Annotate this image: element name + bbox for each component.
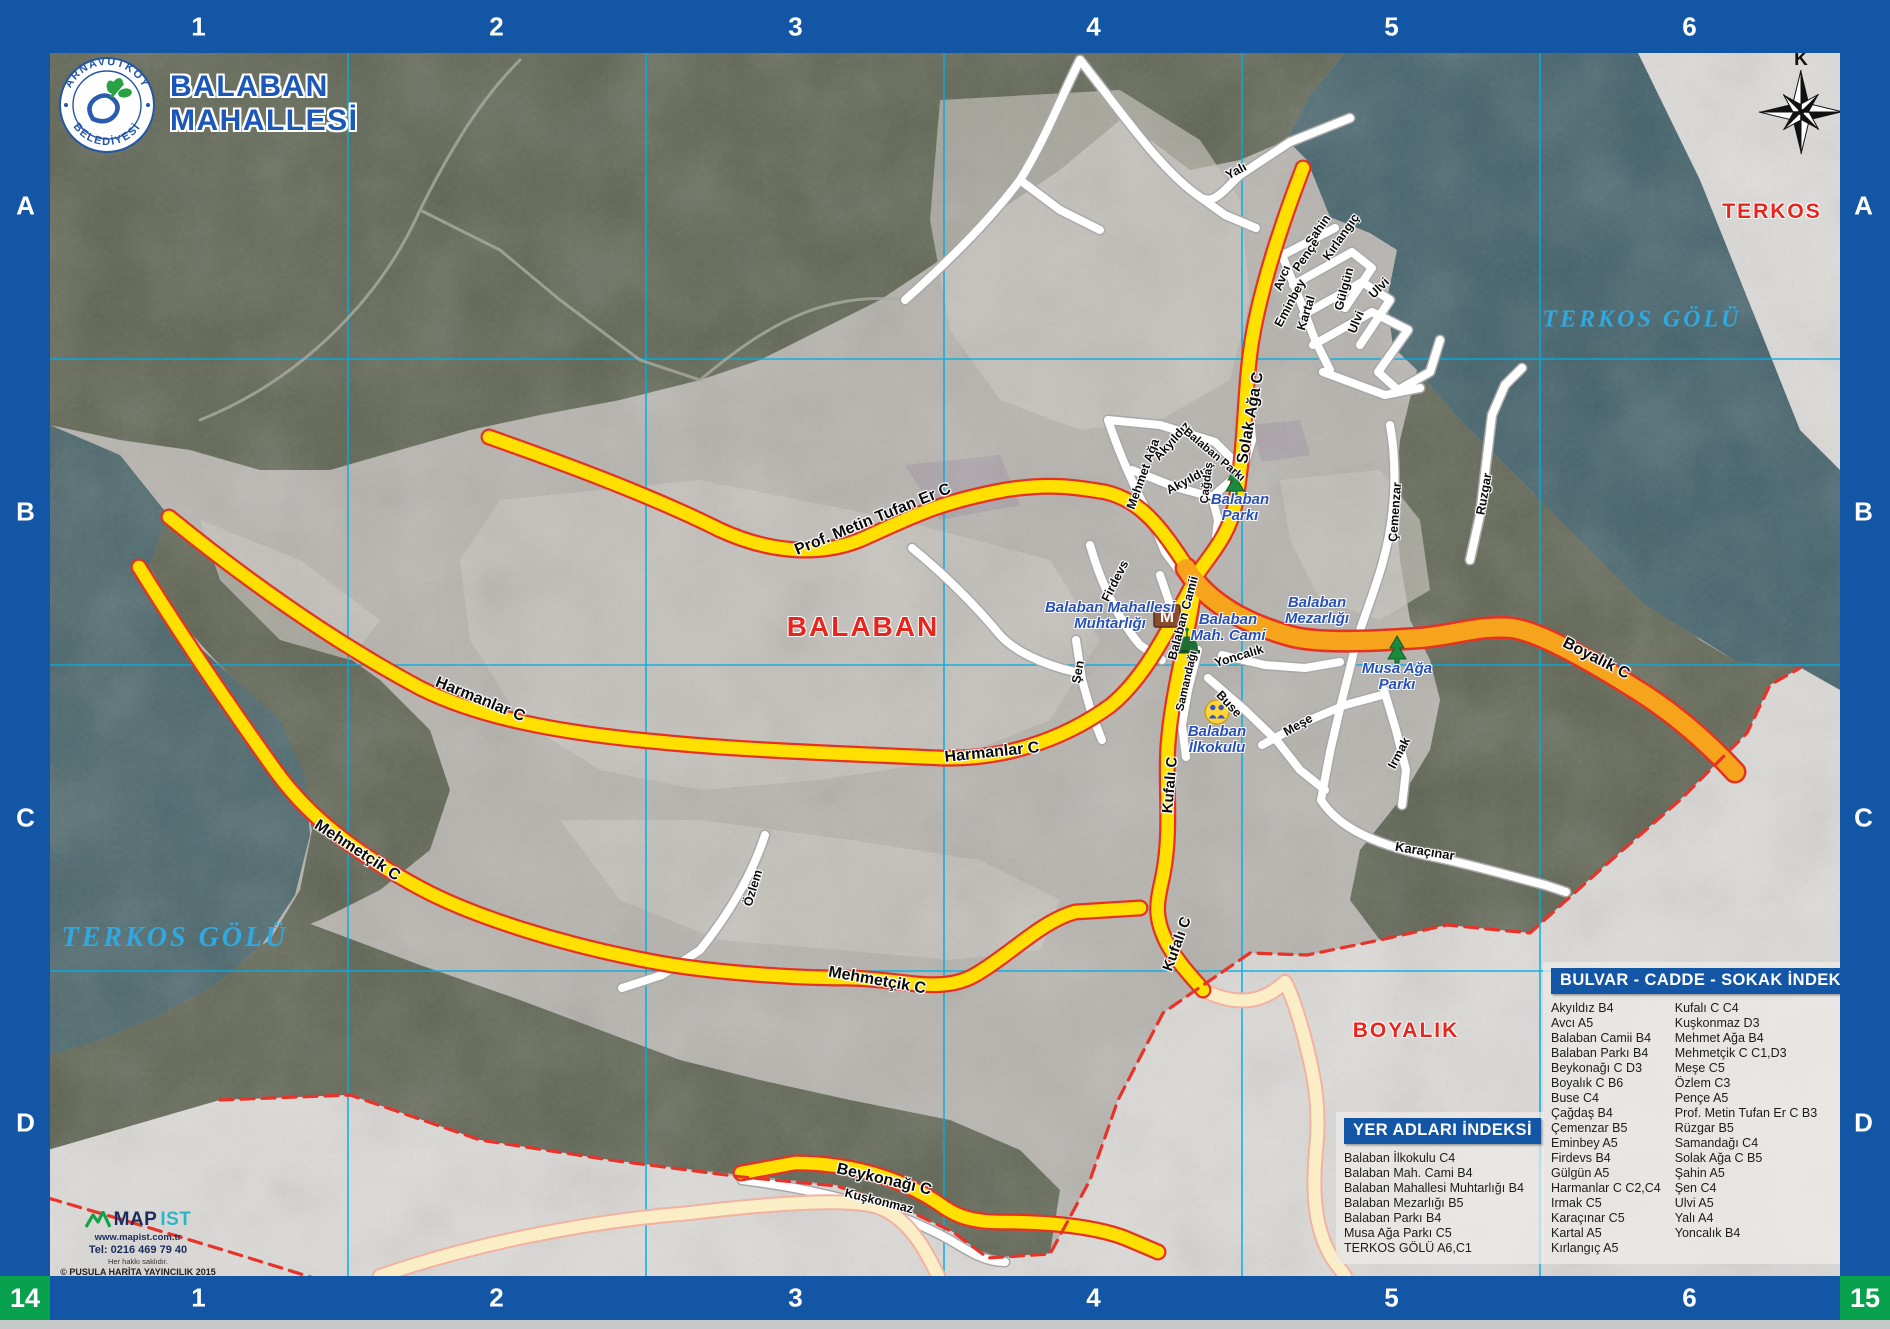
index-entry: Buse C4 xyxy=(1551,1091,1661,1106)
index-entry: Balaban İlkokulu C4 xyxy=(1344,1151,1536,1166)
index-entry: Meşe C5 xyxy=(1675,1061,1817,1076)
grid-column-label: 5 xyxy=(1384,12,1399,43)
index-entry: Yalı A4 xyxy=(1675,1211,1817,1226)
grid-column-label: 1 xyxy=(191,12,206,43)
grid-column-label: 2 xyxy=(489,12,504,43)
place-index-box: YER ADLARI İNDEKSİ Balaban İlkokulu C4Ba… xyxy=(1336,1112,1544,1264)
index-entry: Şen C4 xyxy=(1675,1181,1817,1196)
grid-column-label: 2 xyxy=(489,1283,504,1314)
sheet-number-right: 15 xyxy=(1840,1276,1890,1320)
grid-row-label: A xyxy=(1854,191,1874,222)
grid-column-label: 6 xyxy=(1682,1283,1697,1314)
index-entry: Gülgün A5 xyxy=(1551,1166,1661,1181)
grid-row-label: A xyxy=(16,191,36,222)
index-entry: Prof. Metin Tufan Er C B3 xyxy=(1675,1106,1817,1121)
grid-row-label: D xyxy=(1854,1108,1874,1139)
index-entry: Akyıldız B4 xyxy=(1551,1001,1661,1016)
index-entry: Pençe A5 xyxy=(1675,1091,1817,1106)
index-entry: Eminbey A5 xyxy=(1551,1136,1661,1151)
street-index-box: BULVAR - CADDE - SOKAK İNDEKSİ Akyıldız … xyxy=(1543,962,1859,1264)
title-block: ARNAVUTKÖY BELEDİYESİ BALABAN MAHALLESİ xyxy=(58,56,359,154)
index-entry: Harmanlar C C2,C4 xyxy=(1551,1181,1661,1196)
grid-row-label: B xyxy=(16,497,36,528)
publisher-rights: Her hakkı saklıdır. xyxy=(48,1257,228,1266)
frame-bottom xyxy=(0,1276,1890,1320)
grid-row-label: C xyxy=(1854,803,1874,834)
index-entry: Samandağı C4 xyxy=(1675,1136,1817,1151)
index-entry: Beykonağı C D3 xyxy=(1551,1061,1661,1076)
place-index-list: Balaban İlkokulu C4Balaban Mah. Cami B4B… xyxy=(1344,1151,1536,1256)
school-icon xyxy=(1205,700,1229,724)
publisher-brand-suffix: IST xyxy=(160,1208,191,1232)
place-index-title: YER ADLARI İNDEKSİ xyxy=(1344,1118,1541,1144)
frame-outer-strip xyxy=(0,1320,1890,1329)
index-entry: Şahin A5 xyxy=(1675,1166,1817,1181)
municipality-logo: ARNAVUTKÖY BELEDİYESİ xyxy=(58,56,156,154)
index-entry: Yoncalık B4 xyxy=(1675,1226,1817,1241)
sheet-number-left: 14 xyxy=(0,1276,50,1320)
index-entry: Balaban Mahallesi Muhtarlığı B4 xyxy=(1344,1181,1536,1196)
grid-column-label: 5 xyxy=(1384,1283,1399,1314)
index-entry: Irmak C5 xyxy=(1551,1196,1661,1211)
svg-text:M: M xyxy=(1160,607,1174,626)
index-entry: Mehmetçik C C1,D3 xyxy=(1675,1046,1817,1061)
index-entry: TERKOS GÖLÜ A6,C1 xyxy=(1344,1241,1536,1256)
grid-column-label: 1 xyxy=(191,1283,206,1314)
street-index-column-1: Akyıldız B4Avcı A5Balaban Camii B4Balaba… xyxy=(1551,1001,1661,1256)
street-index-column-2: Kufalı C C4Kuşkonmaz D3Mehmet Ağa B4Mehm… xyxy=(1675,1001,1817,1256)
frame-left xyxy=(0,53,50,1276)
grid-column-label: 3 xyxy=(788,1283,803,1314)
grid-column-label: 4 xyxy=(1086,1283,1101,1314)
index-entry: Avcı A5 xyxy=(1551,1016,1661,1031)
grid-row-label: C xyxy=(16,803,36,834)
grid-row-label: B xyxy=(1854,497,1874,528)
mapist-mountain-icon xyxy=(85,1211,111,1228)
publisher-brand: MAP xyxy=(114,1208,158,1232)
index-entry: Çemenzar B5 xyxy=(1551,1121,1661,1136)
index-entry: Mehmet Ağa B4 xyxy=(1675,1031,1817,1046)
index-entry: Boyalık C B6 xyxy=(1551,1076,1661,1091)
index-entry: Karaçınar C5 xyxy=(1551,1211,1661,1226)
page-title: BALABAN MAHALLESİ xyxy=(170,70,359,137)
map-sheet: M K xyxy=(0,0,1890,1329)
index-entry: Firdevs B4 xyxy=(1551,1151,1661,1166)
street-index-title: BULVAR - CADDE - SOKAK İNDEKSİ xyxy=(1551,968,1866,994)
index-entry: Çağdaş B4 xyxy=(1551,1106,1661,1121)
index-entry: Kartal A5 xyxy=(1551,1226,1661,1241)
grid-column-label: 6 xyxy=(1682,12,1697,43)
grid-column-label: 4 xyxy=(1086,12,1101,43)
index-entry: Ulvi A5 xyxy=(1675,1196,1817,1211)
frame-top xyxy=(0,0,1890,53)
index-entry: Kufalı C C4 xyxy=(1675,1001,1817,1016)
index-entry: Balaban Camii B4 xyxy=(1551,1031,1661,1046)
index-entry: Solak Ağa C B5 xyxy=(1675,1151,1817,1166)
index-entry: Balaban Parkı B4 xyxy=(1551,1046,1661,1061)
publisher-phone: Tel: 0216 469 79 40 xyxy=(48,1244,228,1258)
index-entry: Balaban Parkı B4 xyxy=(1344,1211,1536,1226)
publisher-url: www.mapist.com.tr xyxy=(48,1232,228,1244)
frame-right xyxy=(1840,53,1890,1276)
publisher-block: MAPIST www.mapist.com.tr Tel: 0216 469 7… xyxy=(48,1208,228,1278)
grid-column-label: 3 xyxy=(788,12,803,43)
muhtarlik-marker-icon: M xyxy=(1154,605,1180,627)
grid-row-label: D xyxy=(16,1108,36,1139)
index-entry: Balaban Mah. Cami B4 xyxy=(1344,1166,1536,1181)
index-entry: Rüzgar B5 xyxy=(1675,1121,1817,1136)
index-entry: Kuşkonmaz D3 xyxy=(1675,1016,1817,1031)
index-entry: Balaban Mezarlığı B5 xyxy=(1344,1196,1536,1211)
index-entry: Kırlangıç A5 xyxy=(1551,1241,1661,1256)
index-entry: Musa Ağa Parkı C5 xyxy=(1344,1226,1536,1241)
index-entry: Özlem C3 xyxy=(1675,1076,1817,1091)
